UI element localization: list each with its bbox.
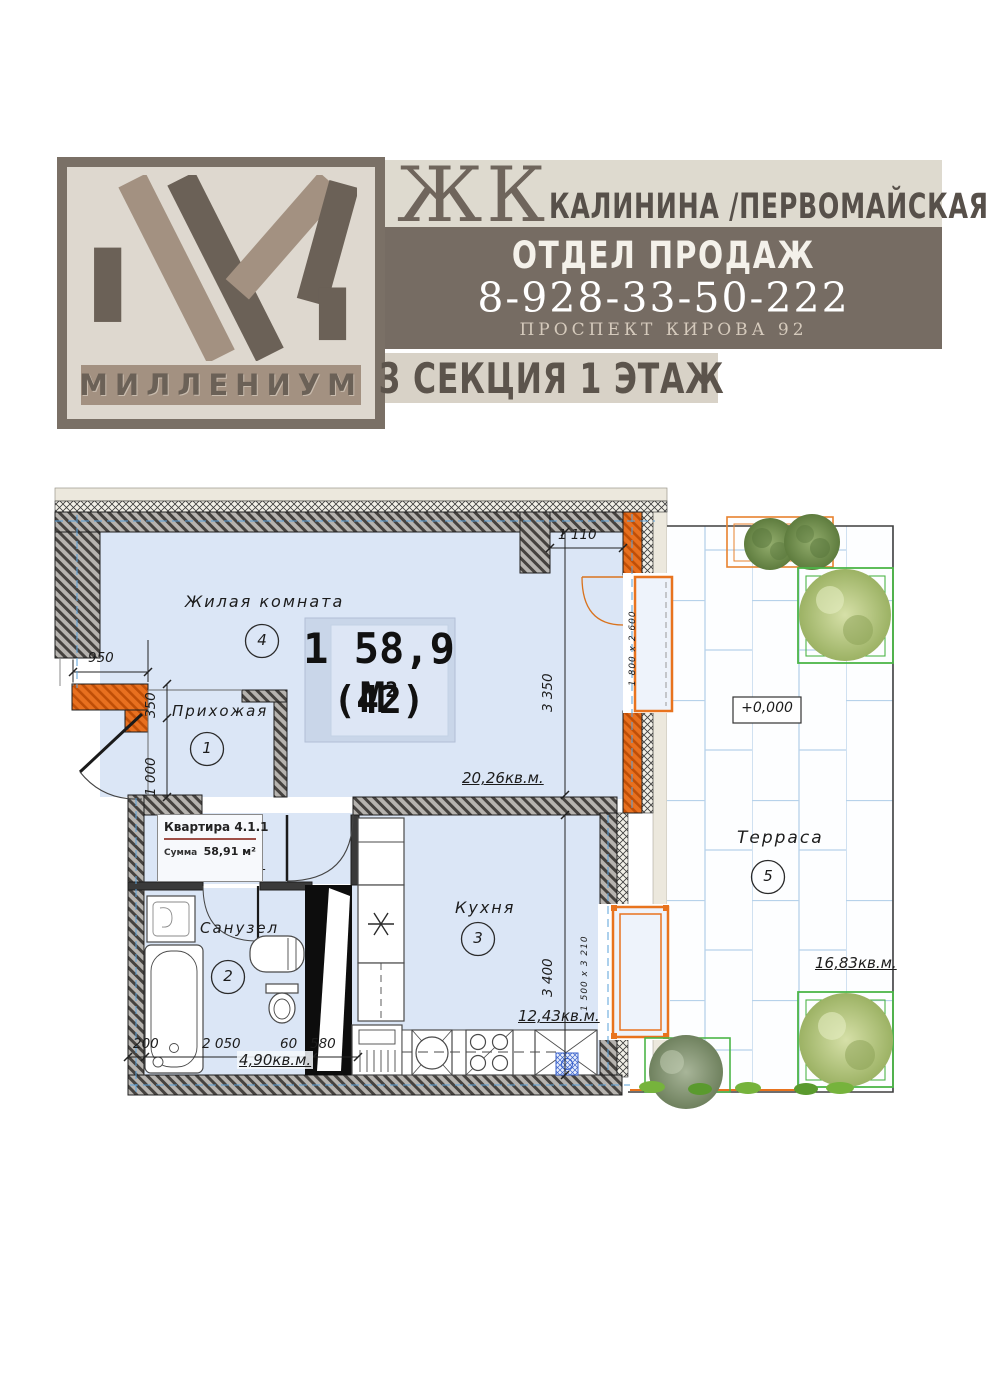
dim-door: 1 800 x 2 600 xyxy=(628,600,638,686)
room-number-living: 4 xyxy=(245,631,279,649)
unit-number-label: (42) xyxy=(303,678,455,722)
dim-200: 200 xyxy=(133,1036,159,1052)
room-number-bath: 2 xyxy=(211,967,245,985)
room-area-bath: 4,90кв.м. xyxy=(237,1051,313,1069)
room-label-hall: Прихожая xyxy=(172,702,268,720)
flyer-page: МИЛЛЕНИУМ ЖК КАЛИНИНА /ПЕРВОМАЙСКАЯ ОТДЕ… xyxy=(0,0,1000,1400)
kitchen-window xyxy=(598,904,670,1040)
dim-window: 1 500 x 3 210 xyxy=(580,925,590,1011)
dim-1000: 1 000 xyxy=(143,718,159,796)
dim-3350: 3 350 xyxy=(540,628,556,712)
room-label-living: Жилая комната xyxy=(185,592,344,611)
room-area-living: 20,26кв.м. xyxy=(462,769,544,787)
info-divider xyxy=(164,838,256,840)
room-number-hall: 1 xyxy=(190,739,224,757)
room-number-kitchen: 3 xyxy=(461,929,495,947)
room-label-terrace: Терраса xyxy=(737,828,824,848)
room-label-kitchen: Кухня xyxy=(455,898,515,917)
dim-2050: 2 050 xyxy=(202,1036,241,1052)
room-label-bath: Санузел xyxy=(200,919,279,937)
dim-1110: 1 110 xyxy=(558,527,597,543)
apartment-id: Квартира 4.1.1 xyxy=(164,820,256,834)
room-area-terrace: 16,83кв.м. xyxy=(815,954,897,972)
dim-580: 580 xyxy=(310,1036,336,1052)
sum-value: 58,91 м² xyxy=(204,845,256,858)
sum-label: Сумма xyxy=(164,848,197,858)
apartment-info-box: Квартира 4.1.1 Сумма 58,91 м² xyxy=(157,814,263,882)
level-mark: +0,000 xyxy=(735,700,799,716)
dim-350: 350 xyxy=(143,684,159,718)
room-number-terrace: 5 xyxy=(751,867,785,885)
dim-60: 60 xyxy=(280,1036,297,1052)
dim-3400: 3 400 xyxy=(540,913,556,997)
dim-950: 950 xyxy=(88,650,114,666)
